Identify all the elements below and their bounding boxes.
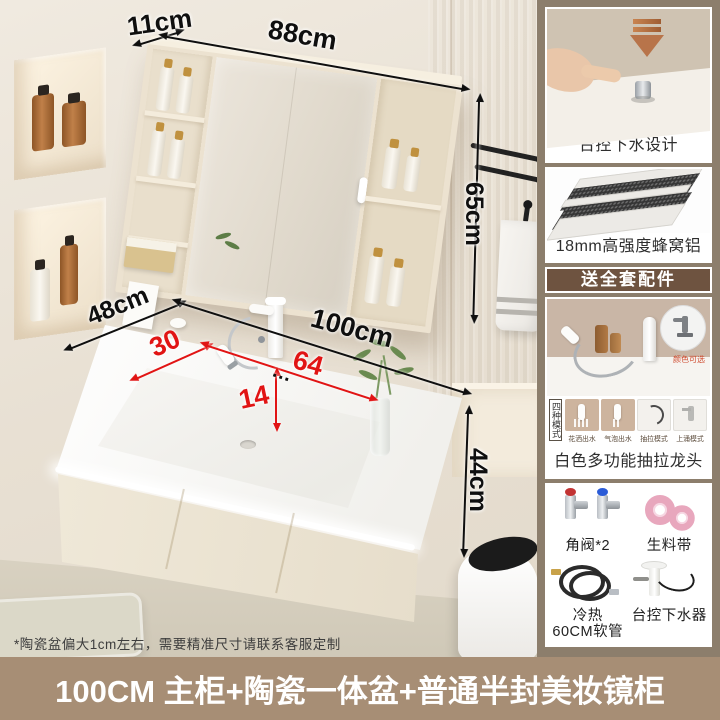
- pullout-hose-icon: [637, 399, 671, 431]
- accessory-drain: 台控下水器: [631, 559, 709, 641]
- dim-label-44cm: 44cm: [463, 448, 492, 512]
- pop-up-drain-button: [635, 81, 651, 99]
- perfume-bottle: [30, 267, 50, 322]
- accessory-hoses: 冷热60CM软管: [549, 559, 627, 641]
- accessories-card: 角阀*2 生料带 冷热60CM软管: [545, 483, 712, 647]
- hose-connector: [258, 336, 265, 343]
- feature-sidebar: 台控下水设计 18mm高强度蜂窝铝 送全套配件: [537, 0, 720, 658]
- wall-niche-top: [14, 47, 106, 180]
- mirror-door: [185, 57, 377, 316]
- mirror-cabinet: [115, 42, 463, 333]
- mode-thumb: 上涌模式: [673, 399, 707, 444]
- hand-press-photo: [547, 9, 710, 131]
- product-image: 11cm 88cm 65cm 48cm 100cm 30 64 14 … 44c…: [0, 0, 720, 720]
- faucet-modes-row: 四种模式 花洒出水 气泡出水 抽拉模式 上涌模式: [547, 396, 710, 447]
- shelf-bottle: [147, 129, 167, 176]
- feature-card-faucet: 颜色可选 四种模式 花洒出水 气泡出水 抽拉模式 上涌模式: [545, 297, 712, 479]
- feature-label: 白色多功能抽拉龙头: [547, 447, 710, 477]
- accessories-grid: 角阀*2 生料带 冷热60CM软管: [547, 485, 710, 645]
- shelf-bottle: [155, 66, 175, 111]
- basin-drain: [240, 440, 256, 449]
- drain-assembly-icon: [631, 559, 709, 609]
- feature-card-honeycomb: 18mm高强度蜂窝铝: [545, 167, 712, 263]
- amber-bottle: [32, 93, 54, 152]
- shelf-bottle: [175, 74, 194, 114]
- shower-spray-icon: [565, 399, 599, 431]
- color-option-inset-icon: [660, 305, 706, 351]
- honeycomb-layers-icon: [547, 169, 710, 233]
- accessory-angle-valves: 角阀*2: [549, 489, 627, 555]
- dim-label-65cm: 65cm: [459, 182, 488, 246]
- mode-thumb: 气泡出水: [601, 399, 635, 444]
- bubble-stream-icon: [601, 399, 635, 431]
- disclaimer-text: *陶瓷盆偏大1cm左右，需要精准尺寸请联系客服定制: [14, 633, 341, 653]
- glass-vase: [370, 398, 390, 456]
- press-down-icon: [627, 19, 667, 57]
- ptfe-tape-icon: [631, 489, 709, 539]
- dim-label-14: 14: [236, 379, 272, 416]
- mode-thumb: 花洒出水: [565, 399, 599, 444]
- product-title: 100CM 主柜+陶瓷一体盆+普通半封美妆镜柜: [55, 666, 665, 711]
- angle-valve-icon: [549, 489, 627, 539]
- pullout-hose: [568, 322, 644, 385]
- faucet-photo: 颜色可选: [547, 299, 710, 396]
- accessory-ptfe-tape: 生料带: [631, 489, 709, 555]
- mode-thumb: 抽拉模式: [637, 399, 671, 444]
- upward-flow-icon: [673, 399, 707, 431]
- gift-banner: 送全套配件: [545, 267, 712, 293]
- shelf-bottle: [403, 155, 422, 193]
- shelf-bottle: [166, 138, 185, 179]
- shelf-bottle: [381, 146, 401, 190]
- dim-label-88cm: 88cm: [266, 14, 339, 57]
- color-option-note: 颜色可选: [673, 354, 705, 365]
- tissue-box: [123, 237, 176, 273]
- amber-bottle: [62, 100, 86, 147]
- modes-title: 四种模式: [549, 399, 562, 441]
- hose-icon: [549, 559, 627, 609]
- feature-card-drain-control: 台控下水设计: [545, 7, 712, 163]
- product-title-banner: 100CM 主柜+陶瓷一体盆+普通半封美妆镜柜: [0, 657, 720, 720]
- white-faucet: [643, 317, 656, 361]
